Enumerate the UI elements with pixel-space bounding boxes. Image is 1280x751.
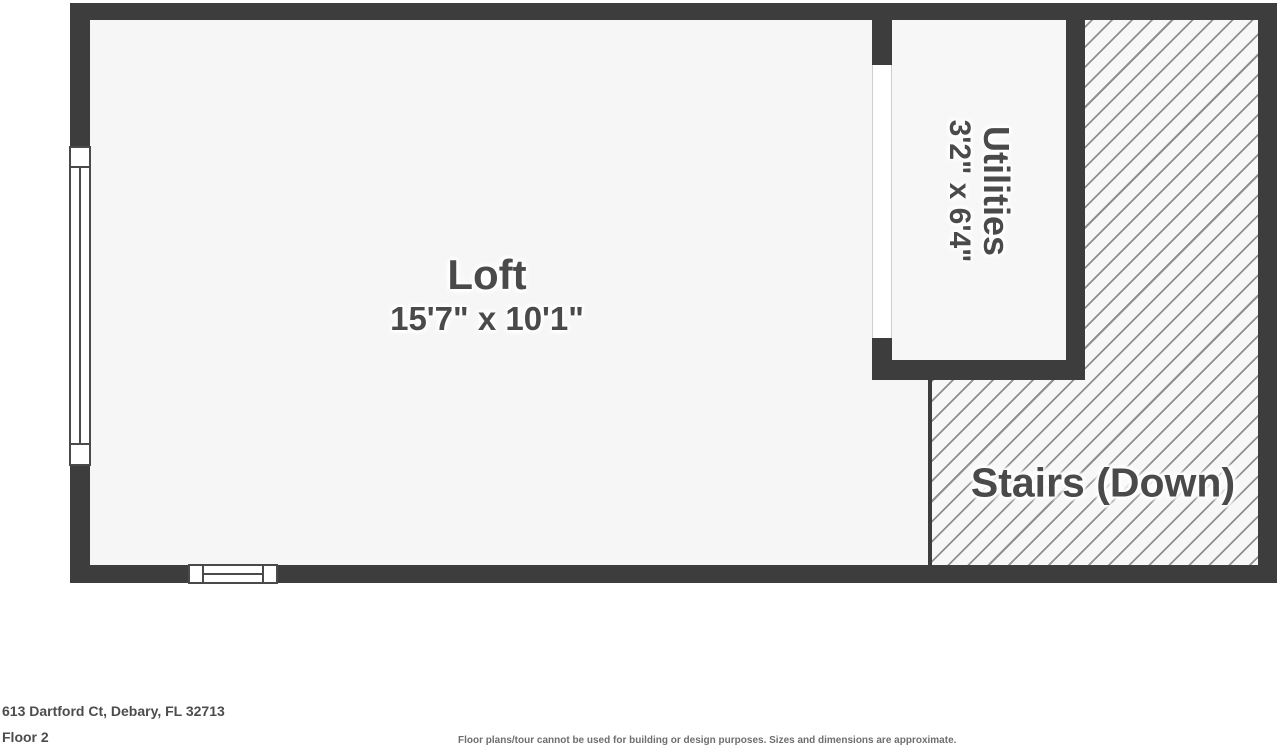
stairs-boundary-line xyxy=(928,380,932,565)
utilities-right-wall xyxy=(1066,20,1085,380)
address-text: 613 Dartford Ct, Debary, FL 32713 xyxy=(2,703,225,719)
window-divider-right xyxy=(262,566,264,582)
disclaimer-text: Floor plans/tour cannot be used for buil… xyxy=(458,735,956,746)
stairs-label: Stairs (Down) xyxy=(971,460,1235,507)
utilities-label: Utilities xyxy=(976,120,1017,263)
window-center-line xyxy=(79,168,81,443)
bottom-wall-window xyxy=(188,564,278,584)
floor-number-text: Floor 2 xyxy=(2,729,49,745)
door-opening xyxy=(872,65,892,338)
loft-dimensions: 15'7" x 10'1" xyxy=(390,300,584,338)
utilities-dimensions: 3'2" x 6'4" xyxy=(941,120,976,263)
utilities-bottom-wall xyxy=(872,360,1085,380)
left-wall-window xyxy=(69,146,91,466)
loft-label: Loft xyxy=(447,251,526,299)
utilities-left-wall-top xyxy=(872,20,892,65)
utilities-label-block: Utilities 3'2" x 6'4" xyxy=(941,120,1017,263)
floor-plan-page: Loft 15'7" x 10'1" Utilities 3'2" x 6'4"… xyxy=(0,0,1280,751)
window-center-line xyxy=(204,573,262,575)
window-sill-bottom xyxy=(71,443,89,445)
